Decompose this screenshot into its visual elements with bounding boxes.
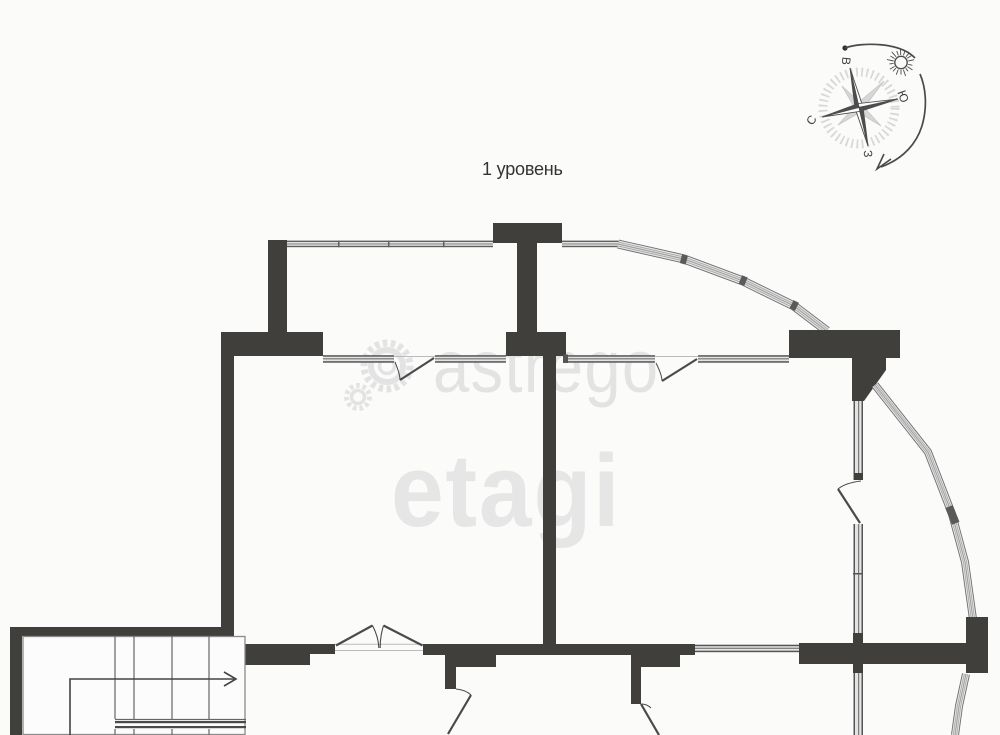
svg-text:etagi: etagi <box>391 432 621 548</box>
svg-text:З: З <box>861 149 876 157</box>
svg-text:1 уровень: 1 уровень <box>482 159 563 179</box>
svg-text:В: В <box>839 56 854 65</box>
